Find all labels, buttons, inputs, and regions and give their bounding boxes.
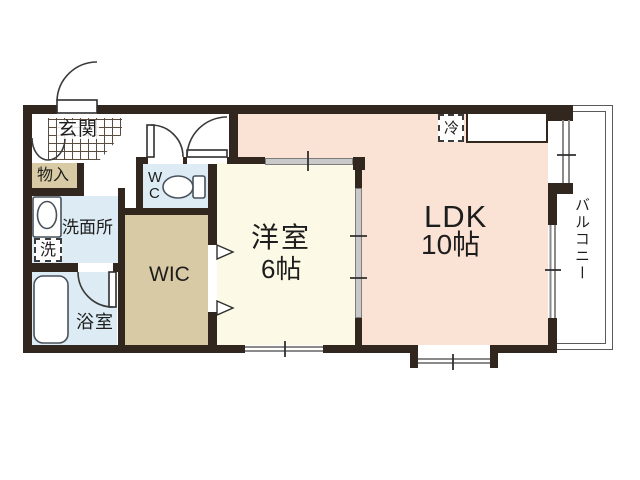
- label-senmenjo: 洗面所: [62, 219, 113, 236]
- label-genkan: 玄関: [57, 120, 99, 139]
- sink-icon: [33, 197, 61, 237]
- label-fridge: 冷: [444, 121, 459, 136]
- label-balcony: バルコニー: [574, 197, 589, 282]
- label-ldk-size: 10帖: [421, 231, 480, 259]
- label-bedroom-size: 6帖: [261, 256, 301, 282]
- plan-symbols: [0, 0, 640, 480]
- bedroom-door-icon: [187, 117, 227, 157]
- label-wic: WIC: [149, 264, 190, 285]
- folding-door-icon-top: [217, 245, 233, 259]
- bathtub-icon: [34, 276, 68, 343]
- monoire-double-door-icon: [32, 138, 65, 160]
- kitchen-window-icon: [557, 120, 576, 183]
- label-wc-c: C: [149, 186, 160, 201]
- toilet-icon: [163, 176, 205, 198]
- entrance-door-icon: [57, 62, 97, 113]
- label-bathroom: 浴室: [76, 313, 114, 331]
- floor-plan: 玄関 物入 W C 洗面所 洗 浴室 WIC 洋室 6帖 LDK 10帖 バルコ…: [0, 0, 640, 480]
- folding-door-icon-bottom: [217, 301, 233, 315]
- label-monoire: 物入: [37, 168, 69, 184]
- balcony-sliding-window-icon: [545, 225, 561, 318]
- label-ldk: LDK: [424, 201, 487, 232]
- kitchen-counter: [466, 112, 548, 143]
- label-wc-w: W: [148, 170, 162, 185]
- bay-window-icon: [418, 354, 490, 370]
- label-washer: 洗: [40, 243, 56, 259]
- wc-door-icon: [147, 125, 183, 157]
- bathroom-door-icon: [78, 272, 116, 307]
- bedroom-window-icon: [245, 341, 323, 357]
- label-bedroom: 洋室: [251, 224, 311, 252]
